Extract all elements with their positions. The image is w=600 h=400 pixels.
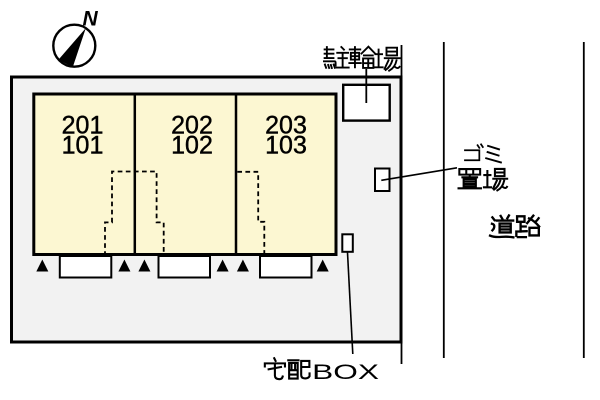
svg-text:101: 101 <box>62 131 104 159</box>
svg-text:102: 102 <box>171 131 213 159</box>
svg-text:103: 103 <box>265 131 307 159</box>
svg-text:BOX: BOX <box>312 360 379 384</box>
svg-text:N: N <box>83 8 99 31</box>
